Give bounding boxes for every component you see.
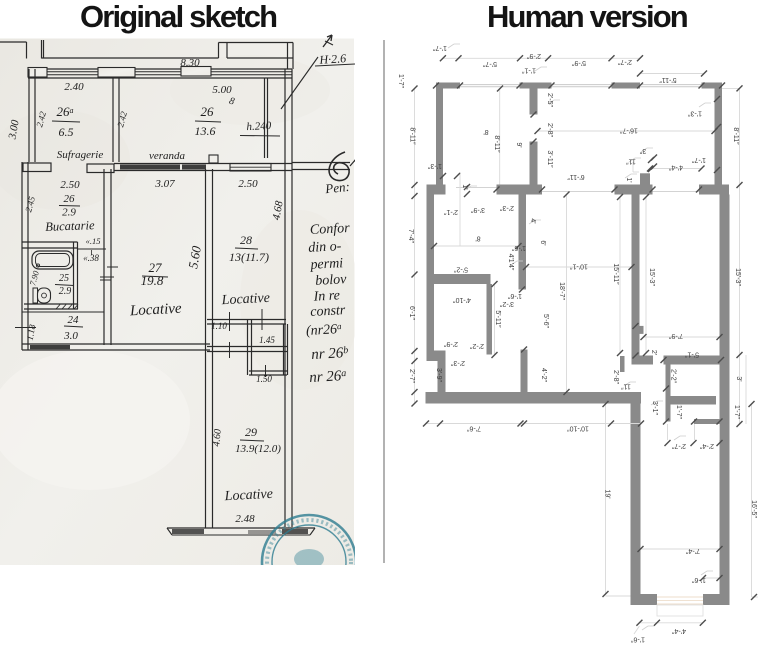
svg-text:2'-7″: 2'-7″ [408, 369, 415, 383]
svg-text:1'-7″: 1'-7″ [433, 44, 447, 51]
svg-text:2'-8″: 2'-8″ [546, 123, 553, 137]
svg-text:din o-: din o- [308, 239, 342, 256]
svg-text:15'-3″: 15'-3″ [648, 268, 655, 286]
svg-text:1'-6″: 1'-6″ [692, 576, 706, 583]
svg-text:19': 19' [604, 489, 611, 498]
svg-text:13.9(12.0): 13.9(12.0) [235, 443, 281, 455]
svg-text:7'-6″: 7'-6″ [467, 425, 481, 432]
svg-text:15'-3″: 15'-3″ [734, 268, 741, 286]
svg-text:26: 26 [64, 193, 76, 205]
svg-text:3″: 3″ [639, 147, 646, 154]
svg-text:5'-11″: 5'-11″ [659, 76, 677, 83]
svg-text:Sufragerie: Sufragerie [57, 149, 104, 161]
svg-text:11″: 11″ [621, 383, 631, 390]
svg-text:1'-7″: 1'-7″ [733, 405, 740, 419]
svg-text:7'-4″: 7'-4″ [686, 547, 700, 554]
svg-text:2'-1″: 2'-1″ [444, 208, 458, 215]
svg-text:5'-2″: 5'-2″ [454, 266, 468, 273]
svg-text:3.0: 3.0 [63, 330, 78, 342]
svg-text:5'-11″: 5'-11″ [494, 310, 501, 328]
svg-text:8': 8' [483, 128, 488, 135]
svg-text:25: 25 [59, 273, 69, 284]
svg-text:Confor: Confor [310, 221, 351, 238]
svg-text:1': 1' [461, 184, 468, 189]
svg-text:bolov: bolov [315, 272, 348, 289]
svg-text:1'-6″: 1'-6″ [631, 636, 645, 643]
svg-text:3.07: 3.07 [154, 178, 175, 190]
svg-text:4': 4' [529, 218, 536, 223]
svg-text:6': 6' [539, 240, 546, 245]
svg-text:24: 24 [68, 314, 80, 326]
svg-text:Locative: Locative [220, 291, 270, 309]
svg-text:1'-3″: 1'-3″ [688, 110, 702, 117]
svg-text:2.50: 2.50 [238, 178, 258, 190]
svg-text:2'-4″: 2'-4″ [700, 442, 714, 449]
svg-text:8': 8' [475, 235, 480, 242]
svg-text:2.50: 2.50 [60, 179, 80, 191]
svg-text:2'-3″: 2'-3″ [451, 359, 465, 366]
svg-text:1.10: 1.10 [211, 321, 227, 331]
svg-text:2'-9″: 2'-9″ [527, 52, 541, 59]
svg-text:2.9: 2.9 [59, 286, 72, 297]
svg-text:Locative: Locative [223, 487, 273, 505]
svg-text:(nr26a: (nr26a [306, 321, 343, 339]
svg-text:28: 28 [240, 233, 252, 247]
svg-text:4'-2″: 4'-2″ [540, 368, 547, 382]
svg-text:h.240: h.240 [246, 120, 272, 133]
svg-text:1.45: 1.45 [259, 335, 275, 345]
svg-text:7'-9″: 7'-9″ [669, 332, 683, 339]
svg-text:13.6: 13.6 [195, 124, 216, 138]
svg-text:3': 3' [735, 376, 742, 381]
svg-text:2.48: 2.48 [235, 513, 255, 525]
svg-text:1.50: 1.50 [256, 374, 272, 384]
svg-text:10'-10″: 10'-10″ [567, 425, 589, 432]
svg-text:veranda: veranda [149, 150, 186, 162]
svg-text:18'-7″: 18'-7″ [558, 282, 565, 300]
svg-text:Locative: Locative [129, 301, 183, 320]
svg-text:3'-11″: 3'-11″ [546, 150, 553, 168]
svg-text:10'-1″: 10'-1″ [570, 263, 588, 270]
svg-text:9': 9' [515, 142, 522, 147]
svg-text:3'-1″: 3'-1″ [651, 401, 658, 415]
svg-text:1'-1″: 1'-1″ [522, 67, 536, 74]
svg-text:6.5: 6.5 [59, 125, 74, 139]
svg-text:In re: In re [312, 288, 340, 304]
svg-text:2'-8″: 2'-8″ [612, 370, 619, 384]
svg-text:permi: permi [309, 256, 344, 273]
svg-text:1': 1' [625, 177, 632, 182]
svg-text:4'-4″: 4'-4″ [669, 164, 683, 171]
svg-text:3'-9″: 3'-9″ [435, 368, 442, 382]
svg-text:7'-4″: 7'-4″ [407, 229, 414, 243]
svg-text:2'-5″: 2'-5″ [546, 93, 553, 107]
svg-text:1'-7″: 1'-7″ [692, 156, 706, 163]
svg-text:8'-11″: 8'-11″ [493, 135, 500, 153]
svg-text:Pen:: Pen: [324, 179, 351, 197]
svg-text:8'-11″: 8'-11″ [732, 127, 739, 145]
svg-text:2'-2″: 2'-2″ [670, 369, 677, 383]
svg-text:5'-1″: 5'-1″ [685, 351, 699, 358]
svg-text:nr 26a: nr 26a [309, 368, 347, 386]
svg-text:2'-7″: 2'-7″ [618, 58, 632, 65]
svg-text:2.9: 2.9 [62, 207, 76, 219]
svg-text:4'1'4″: 4'1'4″ [507, 254, 514, 271]
svg-text:H·2.6: H·2.6 [318, 51, 347, 67]
svg-text:4.60: 4.60 [211, 429, 223, 447]
svg-text:5.00: 5.00 [212, 84, 232, 96]
svg-text:1'-7″: 1'-7″ [675, 405, 682, 419]
svg-text:1'-7″: 1'-7″ [397, 74, 404, 88]
svg-text:Bucatarie: Bucatarie [45, 218, 95, 234]
svg-text:29: 29 [245, 425, 257, 439]
svg-text:2'-7″: 2'-7″ [672, 442, 686, 449]
svg-text:15'-11″: 15'-11″ [612, 263, 619, 285]
svg-text:16'-5″: 16'-5″ [750, 500, 757, 518]
svg-text:2'-2″: 2'-2″ [470, 342, 484, 349]
svg-text:5'-6″: 5'-6″ [542, 314, 549, 328]
svg-text:5'-7″: 5'-7″ [483, 60, 497, 67]
svg-text:2'-9″: 2'-9″ [444, 340, 458, 347]
svg-text:1'-3″: 1'-3″ [428, 162, 442, 169]
svg-text:6'-11″: 6'-11″ [567, 173, 585, 180]
svg-text:2': 2' [650, 350, 657, 355]
svg-text:4'-4″: 4'-4″ [672, 627, 686, 634]
svg-text:3'-9″: 3'-9″ [471, 206, 485, 213]
svg-text:8'-11″: 8'-11″ [409, 127, 416, 145]
svg-text:«.15: «.15 [86, 236, 101, 246]
svg-text:1'-6″: 1'-6″ [512, 244, 526, 251]
svg-text:2'-3″: 2'-3″ [500, 204, 514, 211]
svg-text:26: 26 [201, 104, 215, 119]
svg-text:5'-9″: 5'-9″ [572, 59, 586, 66]
svg-text:3'-2″: 3'-2″ [500, 300, 514, 307]
svg-text:1'-6″: 1'-6″ [508, 292, 522, 299]
svg-text:13(11.7): 13(11.7) [229, 250, 269, 264]
svg-text:11″: 11″ [626, 158, 636, 165]
svg-text:19.8: 19.8 [141, 273, 164, 288]
svg-text:nr 26b: nr 26b [311, 345, 349, 363]
svg-text:16'-7″: 16'-7″ [620, 127, 638, 134]
svg-text:2.40: 2.40 [64, 81, 84, 93]
svg-text:4'-10″: 4'-10″ [453, 296, 471, 303]
svg-text:constr: constr [310, 303, 346, 320]
svg-text:6'-1″: 6'-1″ [408, 306, 415, 320]
